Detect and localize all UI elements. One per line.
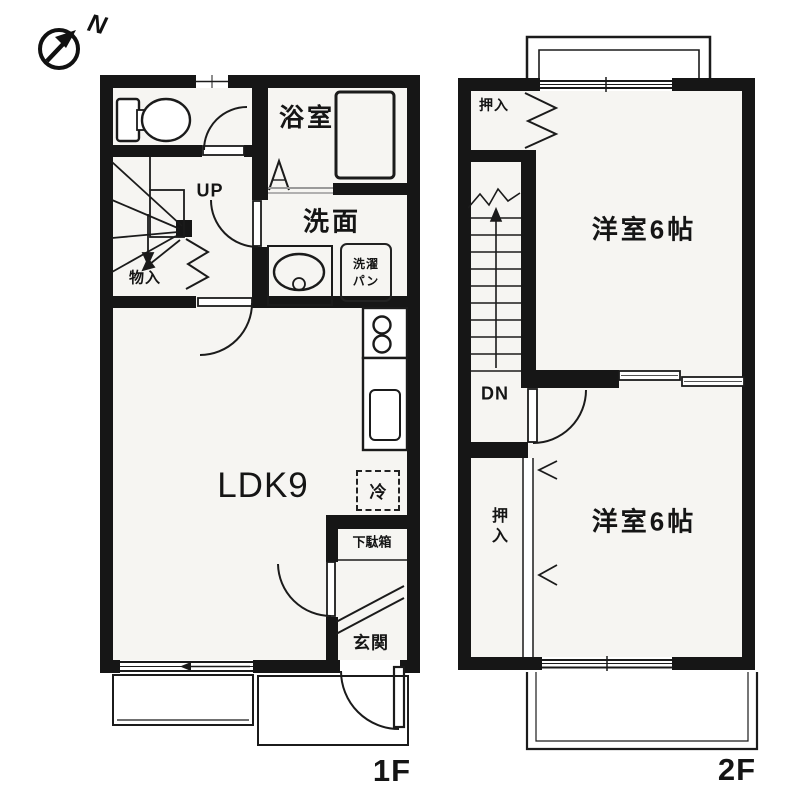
wall bbox=[742, 78, 755, 670]
wall bbox=[112, 145, 202, 157]
washroom-label: 洗面 bbox=[303, 202, 361, 239]
wall bbox=[100, 75, 420, 88]
stairs-down-label: DN bbox=[481, 384, 509, 405]
laundry-pan-box: 洗濯 パン bbox=[340, 243, 392, 302]
bedroom-upper-label: 洋室6帖 bbox=[592, 210, 696, 247]
shoe-cabinet-label: 下駄箱 bbox=[352, 532, 391, 551]
wall bbox=[326, 617, 338, 662]
refrigerator-box: 冷 bbox=[356, 470, 400, 511]
kitchen-counter bbox=[363, 308, 407, 450]
floor1-label: 1F bbox=[373, 753, 411, 789]
compass bbox=[40, 30, 78, 68]
floor2-top-balcony bbox=[527, 37, 710, 78]
floor1-outside bbox=[113, 675, 408, 745]
floorplan-drawing bbox=[0, 0, 800, 800]
laundry-pan-label-line2: パン bbox=[353, 273, 380, 290]
storage-label: 物入 bbox=[129, 267, 161, 288]
floorplan-canvas: N 浴室 洗面 UP 物入 LDK9 下駄箱 玄関 1F 洗濯 パン 冷 押入 … bbox=[0, 0, 800, 800]
closet-upper-label: 押入 bbox=[479, 95, 509, 115]
wall bbox=[521, 370, 619, 388]
bath-room-label: 浴室 bbox=[279, 98, 335, 134]
wall bbox=[407, 75, 420, 673]
entrance-porch bbox=[258, 676, 408, 745]
entrance-label: 玄関 bbox=[353, 629, 389, 654]
wall bbox=[458, 78, 471, 670]
wall bbox=[333, 183, 407, 195]
wall bbox=[330, 515, 407, 529]
entrance-doorway bbox=[340, 660, 400, 673]
wall bbox=[458, 150, 530, 162]
wall bbox=[112, 296, 196, 308]
laundry-pan-label-line1: 洗濯 bbox=[353, 256, 379, 273]
wall bbox=[521, 150, 536, 372]
wall bbox=[100, 75, 113, 673]
wall bbox=[326, 515, 338, 562]
floor2-label: 2F bbox=[718, 752, 756, 788]
floor2-balcony bbox=[527, 672, 757, 749]
toilet-icon bbox=[117, 99, 190, 141]
ldk-room-label: LDK9 bbox=[217, 466, 309, 506]
closet-lower-label: 押入 bbox=[485, 507, 509, 547]
stairs-up-label: UP bbox=[196, 181, 223, 202]
toilet-window bbox=[196, 75, 228, 88]
upper-room-window bbox=[540, 77, 672, 92]
terrace bbox=[113, 675, 253, 725]
wall bbox=[458, 442, 528, 458]
bedroom-lower-label: 洋室6帖 bbox=[592, 502, 696, 539]
lower-room-window bbox=[542, 656, 672, 671]
ldk-sliding-window bbox=[120, 660, 253, 673]
wall bbox=[252, 88, 268, 308]
